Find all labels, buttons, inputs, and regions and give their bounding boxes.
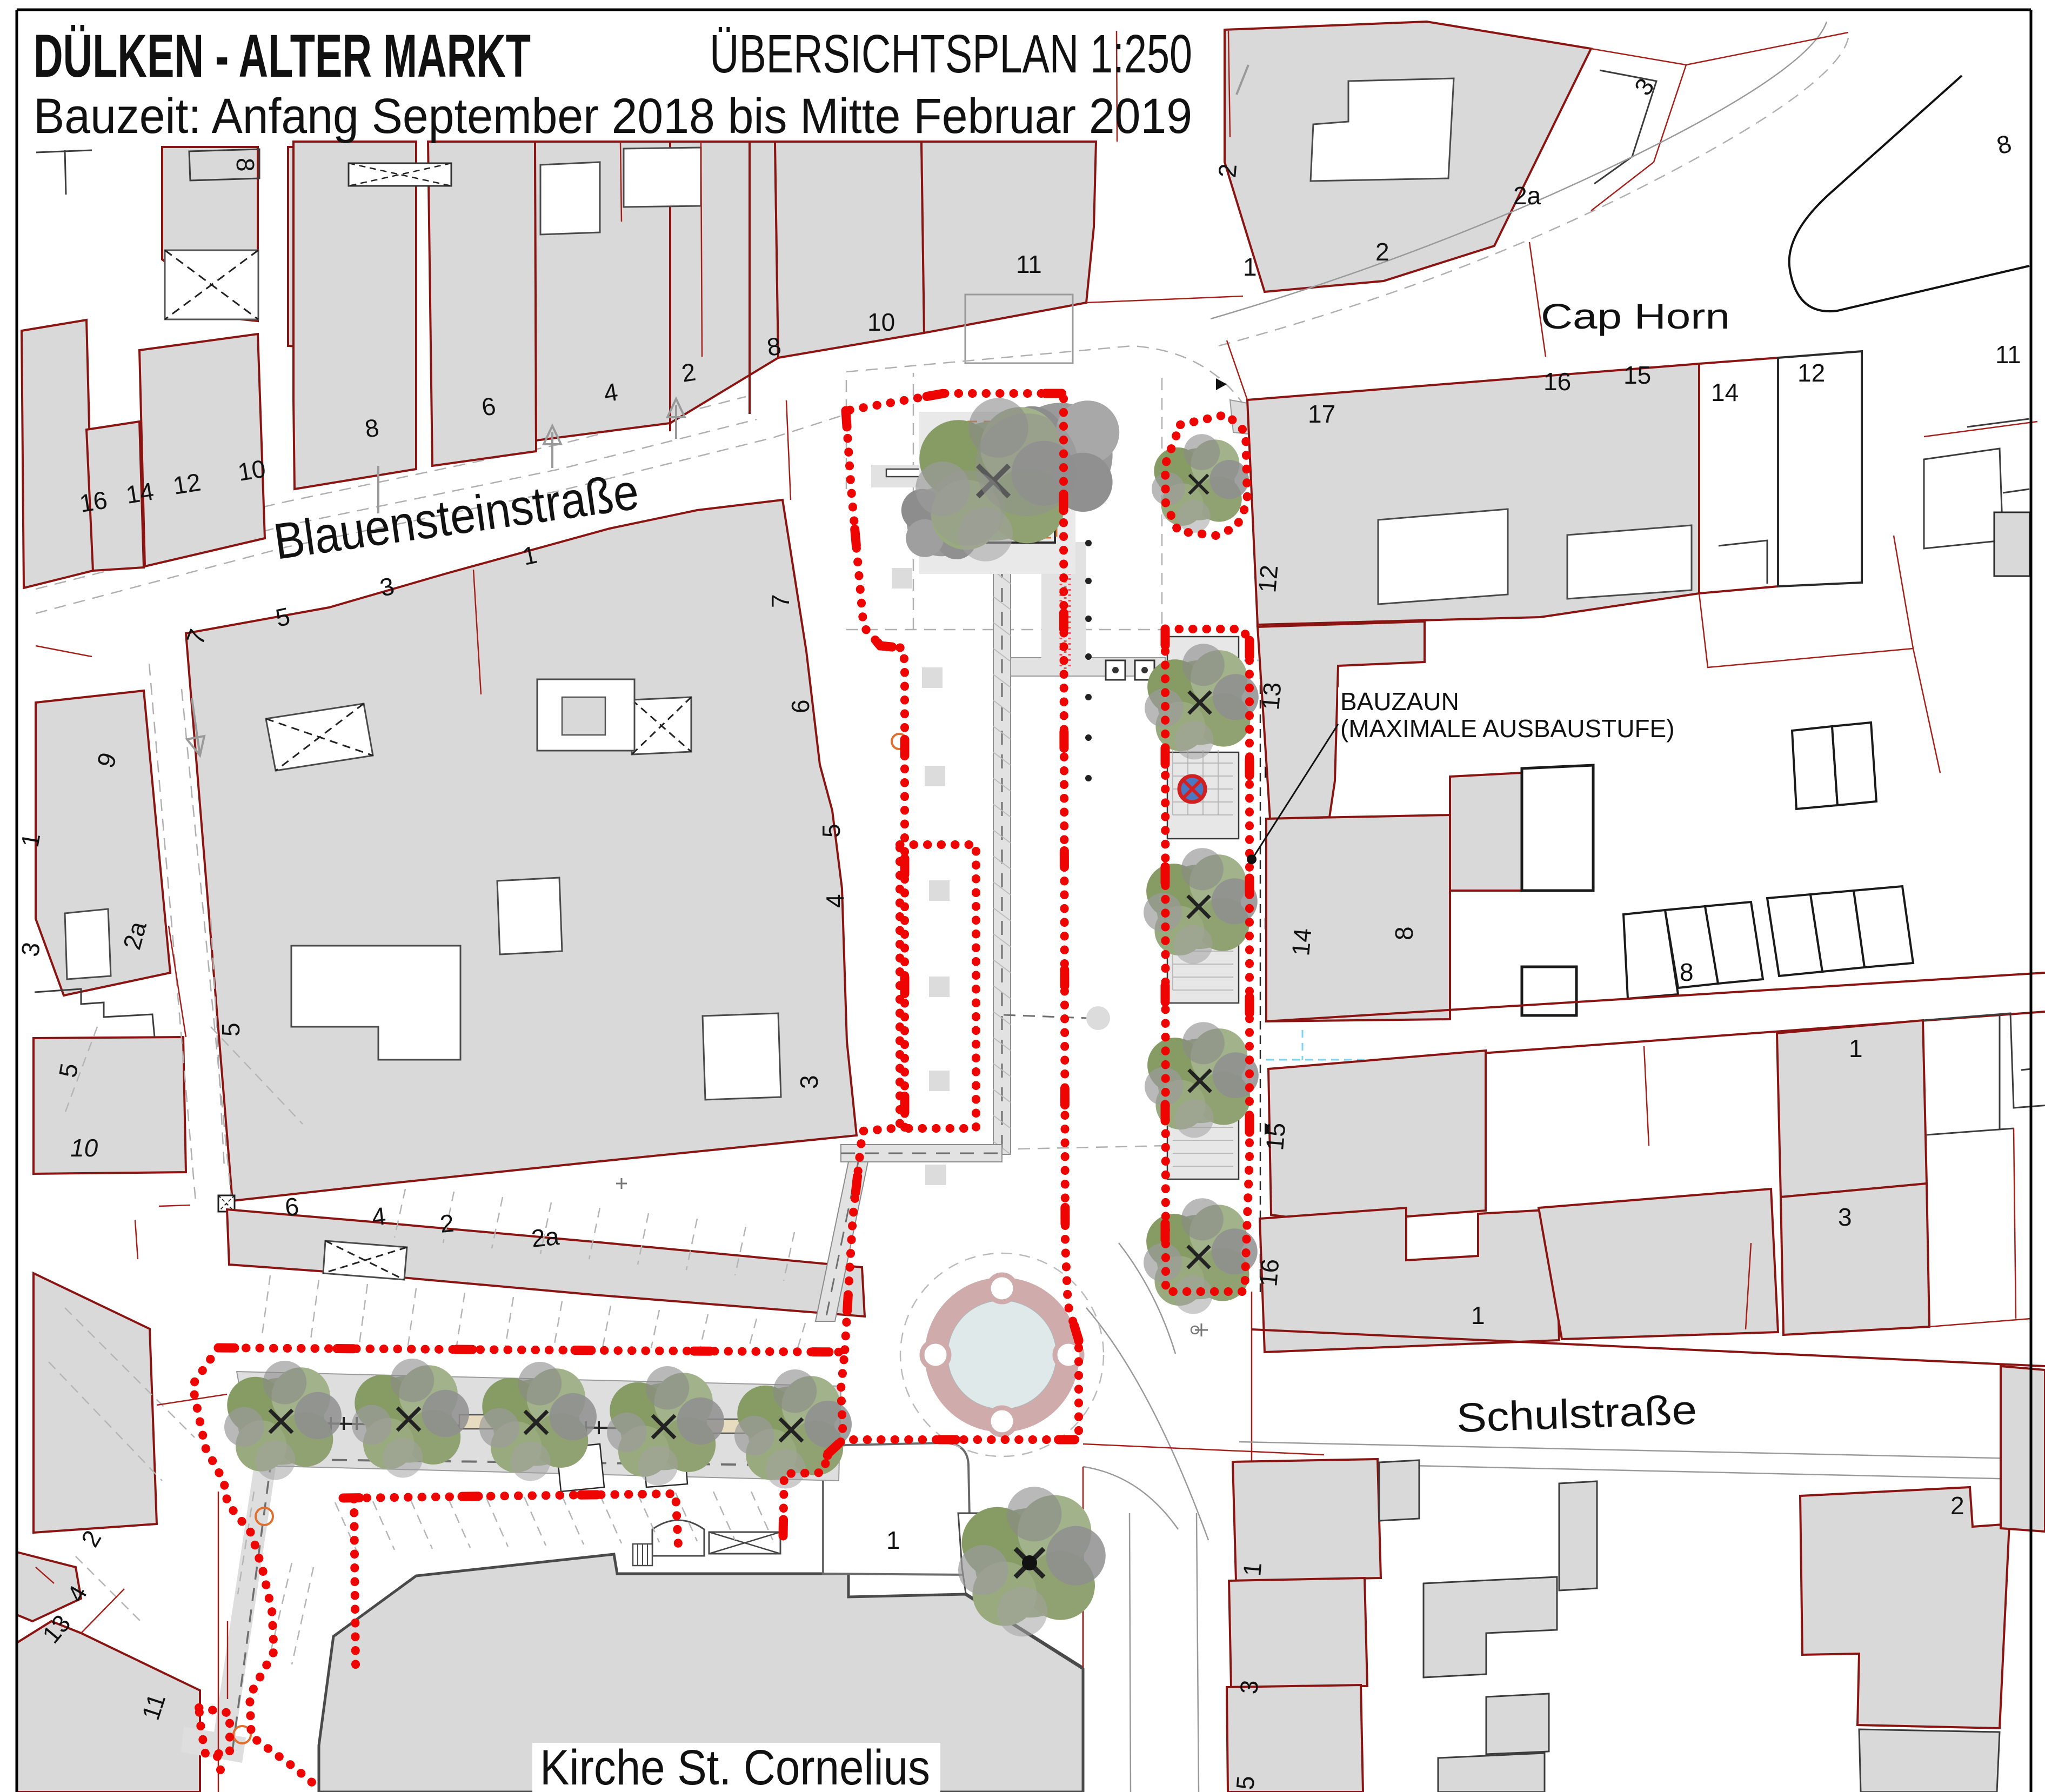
svg-text:6: 6 [284,1192,300,1221]
svg-text:2a: 2a [1513,182,1541,210]
svg-text:1: 1 [886,1526,900,1554]
svg-text:12: 12 [1253,564,1283,594]
svg-text:16: 16 [77,486,109,518]
svg-text:4: 4 [371,1202,387,1231]
svg-text:13: 13 [1256,681,1286,711]
svg-text:5: 5 [817,824,845,838]
svg-text:12: 12 [1797,359,1825,387]
svg-text:14: 14 [1711,378,1739,406]
svg-text:10: 10 [236,454,268,486]
svg-text:1: 1 [1243,253,1257,281]
svg-text:5: 5 [217,1022,245,1037]
svg-text:3: 3 [795,1075,823,1089]
svg-text:10: 10 [70,1134,98,1162]
svg-text:1: 1 [1471,1301,1485,1329]
svg-text:8: 8 [231,158,259,172]
svg-text:11: 11 [1016,250,1042,278]
svg-text:16: 16 [1543,367,1571,396]
svg-text:Cap Horn: Cap Horn [1541,296,1730,336]
svg-text:(MAXIMALE AUSBAUSTUFE): (MAXIMALE AUSBAUSTUFE) [1340,714,1675,743]
svg-text:2: 2 [1375,238,1389,266]
svg-text:5: 5 [1231,1775,1260,1791]
svg-text:17: 17 [1308,400,1335,428]
svg-text:BAUZAUN: BAUZAUN [1340,687,1459,716]
svg-text:3: 3 [1234,1679,1264,1695]
svg-text:12: 12 [171,468,203,500]
svg-text:ÜBERSICHTSPLAN 1:250: ÜBERSICHTSPLAN 1:250 [710,24,1192,84]
svg-text:6: 6 [786,699,814,713]
svg-text:14: 14 [124,477,156,509]
svg-text:Bauzeit: Anfang September 201: Bauzeit: Anfang September 2018 bis Mitte… [34,89,1192,144]
svg-text:2: 2 [1213,163,1242,179]
svg-text:8: 8 [1680,958,1694,986]
svg-text:1: 1 [1849,1034,1863,1062]
svg-text:8: 8 [1390,926,1418,940]
svg-text:16: 16 [1254,1258,1284,1288]
svg-text:11: 11 [1995,340,2021,369]
svg-text:4: 4 [821,894,849,908]
svg-text:14: 14 [1286,927,1316,957]
svg-text:2: 2 [439,1209,456,1238]
svg-text:15: 15 [1260,1121,1291,1152]
svg-text:DÜLKEN - ALTER MARKT: DÜLKEN - ALTER MARKT [34,22,531,90]
svg-text:7: 7 [766,594,794,608]
svg-text:3: 3 [1838,1203,1852,1231]
svg-text:2a: 2a [530,1222,561,1253]
svg-text:2: 2 [1950,1492,1964,1520]
svg-text:1: 1 [1238,1561,1267,1577]
svg-text:Kirche St. Cornelius: Kirche St. Cornelius [540,1740,930,1792]
svg-text:Schulstraße: Schulstraße [1456,1387,1698,1441]
svg-text:10: 10 [867,308,895,336]
svg-text:15: 15 [1623,361,1651,389]
